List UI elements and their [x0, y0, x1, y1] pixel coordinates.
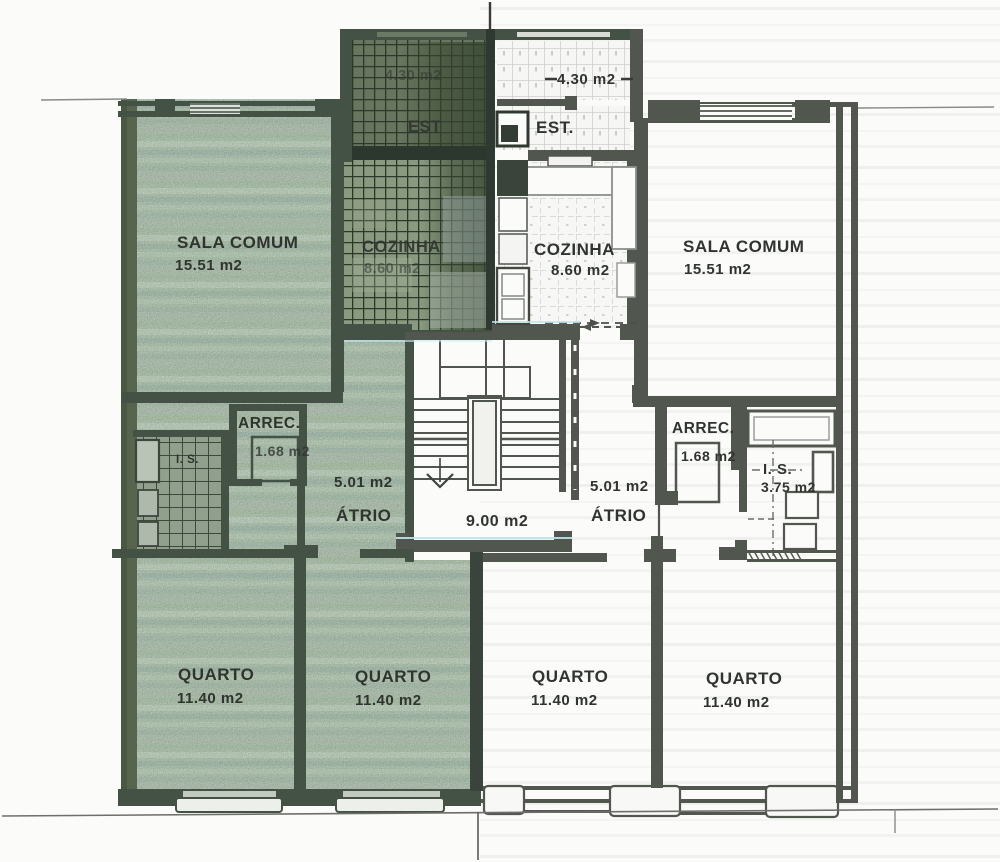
svg-text:9.00 m2: 9.00 m2 — [466, 513, 528, 530]
svg-text:ÁTRIO: ÁTRIO — [591, 506, 646, 525]
svg-text:EST: EST — [408, 118, 442, 136]
svg-text:QUARTO: QUARTO — [706, 669, 782, 688]
svg-text:11.40 m2: 11.40 m2 — [355, 692, 422, 709]
svg-text:15.51 m2: 15.51 m2 — [175, 257, 242, 274]
svg-text:COZINHA: COZINHA — [362, 238, 441, 256]
svg-text:15.51 m2: 15.51 m2 — [684, 261, 751, 278]
svg-text:11.40 m2: 11.40 m2 — [177, 690, 244, 707]
svg-text:SALA COMUM: SALA COMUM — [683, 237, 804, 256]
svg-text:QUARTO: QUARTO — [355, 667, 431, 686]
svg-text:I. S.: I. S. — [176, 454, 199, 466]
svg-text:1.68 m2: 1.68 m2 — [255, 443, 310, 459]
svg-text:5.01 m2: 5.01 m2 — [334, 474, 393, 491]
svg-text:1.68 m2: 1.68 m2 — [681, 448, 736, 464]
svg-text:ARREC.: ARREC. — [672, 420, 734, 437]
svg-text:3.75 m2: 3.75 m2 — [761, 479, 816, 495]
svg-text:QUARTO: QUARTO — [532, 667, 608, 686]
svg-text:11.40 m2: 11.40 m2 — [531, 692, 598, 709]
svg-text:4.30 m2: 4.30 m2 — [385, 68, 442, 84]
svg-text:11.40 m2: 11.40 m2 — [703, 694, 770, 711]
svg-text:8.60 m2: 8.60 m2 — [551, 262, 610, 279]
svg-text:I. S.: I. S. — [763, 461, 792, 478]
svg-text:4.30 m2: 4.30 m2 — [557, 71, 616, 88]
svg-text:ARREC.: ARREC. — [238, 415, 300, 432]
svg-text:QUARTO: QUARTO — [178, 665, 254, 684]
svg-text:5.01 m2: 5.01 m2 — [590, 478, 649, 495]
svg-text:EST.: EST. — [536, 118, 574, 137]
svg-text:SALA COMUM: SALA COMUM — [177, 233, 298, 252]
svg-text:COZINHA: COZINHA — [534, 240, 615, 259]
svg-text:ÁTRIO: ÁTRIO — [336, 506, 391, 525]
svg-text:8.60 m2: 8.60 m2 — [364, 261, 421, 277]
